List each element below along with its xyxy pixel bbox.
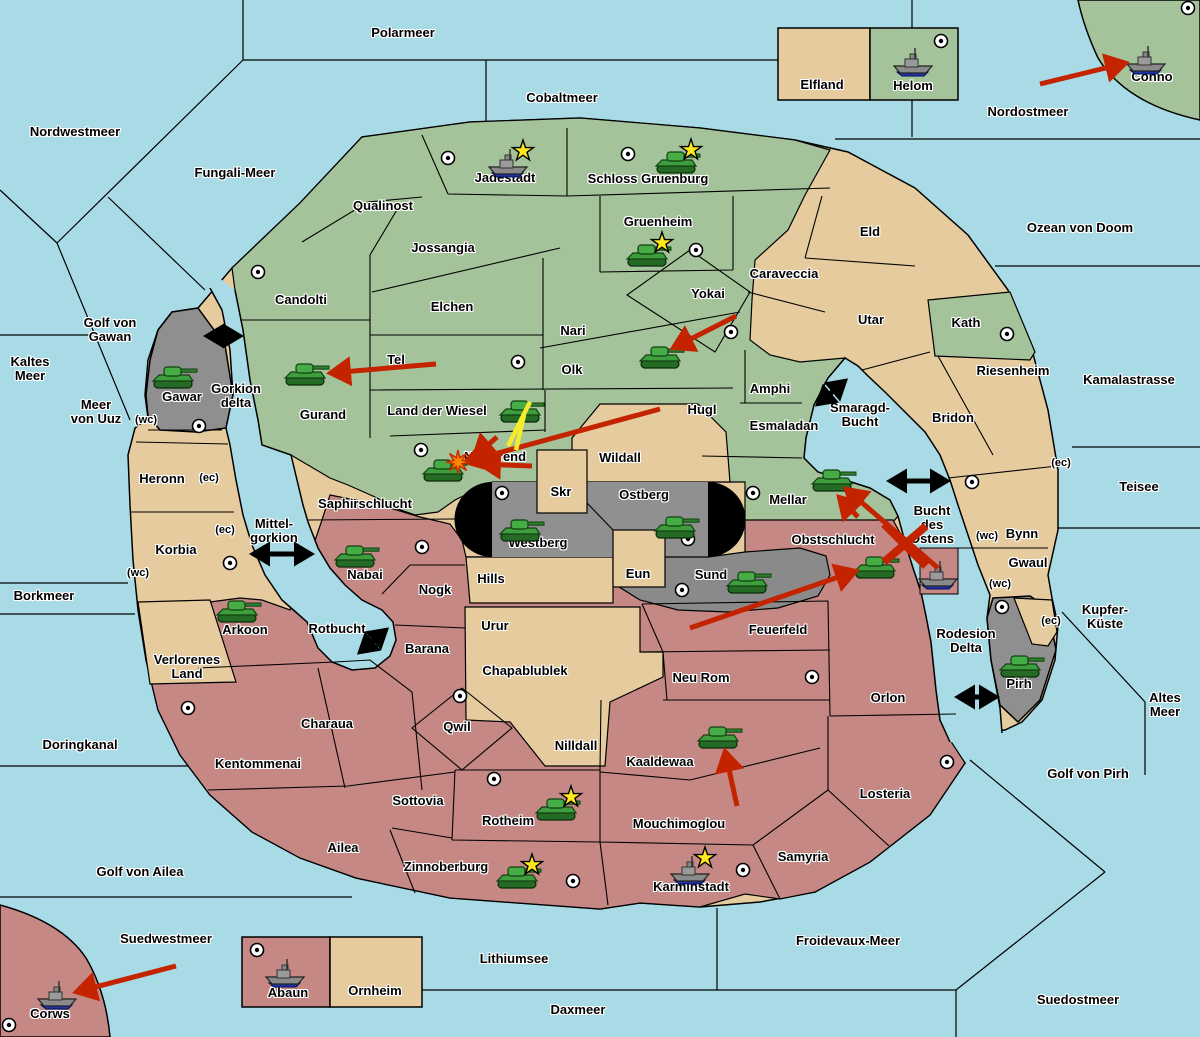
supply-center-ostberg [682, 533, 695, 546]
supply-center-helom [935, 35, 948, 48]
supply-center-zinnoberburg [567, 875, 580, 888]
supply-center-bridon [966, 476, 979, 489]
supply-center-schloss-gruenburg [622, 148, 635, 161]
territory-skr[interactable] [537, 450, 587, 513]
supply-center-gawar [193, 420, 206, 433]
supply-center-westberg [496, 487, 509, 500]
map-base-layer [0, 0, 1200, 1037]
supply-center-pirh [996, 601, 1009, 614]
supply-center-candolti [252, 266, 265, 279]
supply-center-yokai [725, 326, 738, 339]
island-box-elfland-helom[interactable] [778, 28, 958, 100]
supply-center-neu-rom [806, 671, 819, 684]
supply-center-losteria [941, 756, 954, 769]
supply-center-olk [512, 356, 525, 369]
territory-eun[interactable] [613, 530, 665, 587]
island-box-abaun-ornheim[interactable] [242, 937, 422, 1007]
supply-center-kath [1001, 328, 1014, 341]
supply-center-mellar [747, 487, 760, 500]
supply-center-corws [3, 1019, 16, 1032]
territory-hills[interactable] [466, 557, 613, 603]
supply-center-karminstadt [737, 864, 750, 877]
supply-center-norterend [415, 444, 428, 457]
supply-center-gruenheim [690, 244, 703, 257]
supply-center-nabai [416, 541, 429, 554]
supply-center-jadestadt [442, 152, 455, 165]
supply-center-qwil [454, 690, 467, 703]
supply-center-sund [676, 584, 689, 597]
supply-center-abaun [251, 944, 264, 957]
territory-westberg-ostberg[interactable] [492, 482, 708, 557]
supply-center-korbia [224, 557, 237, 570]
supply-center-kentommenai [182, 702, 195, 715]
territory-wildall[interactable] [572, 404, 730, 482]
supply-center-rotheim [488, 773, 501, 786]
supply-center-conno [1182, 2, 1195, 15]
game-map: PolarmeerCobaltmeerNordwestmeerFungali-M… [0, 0, 1200, 1037]
